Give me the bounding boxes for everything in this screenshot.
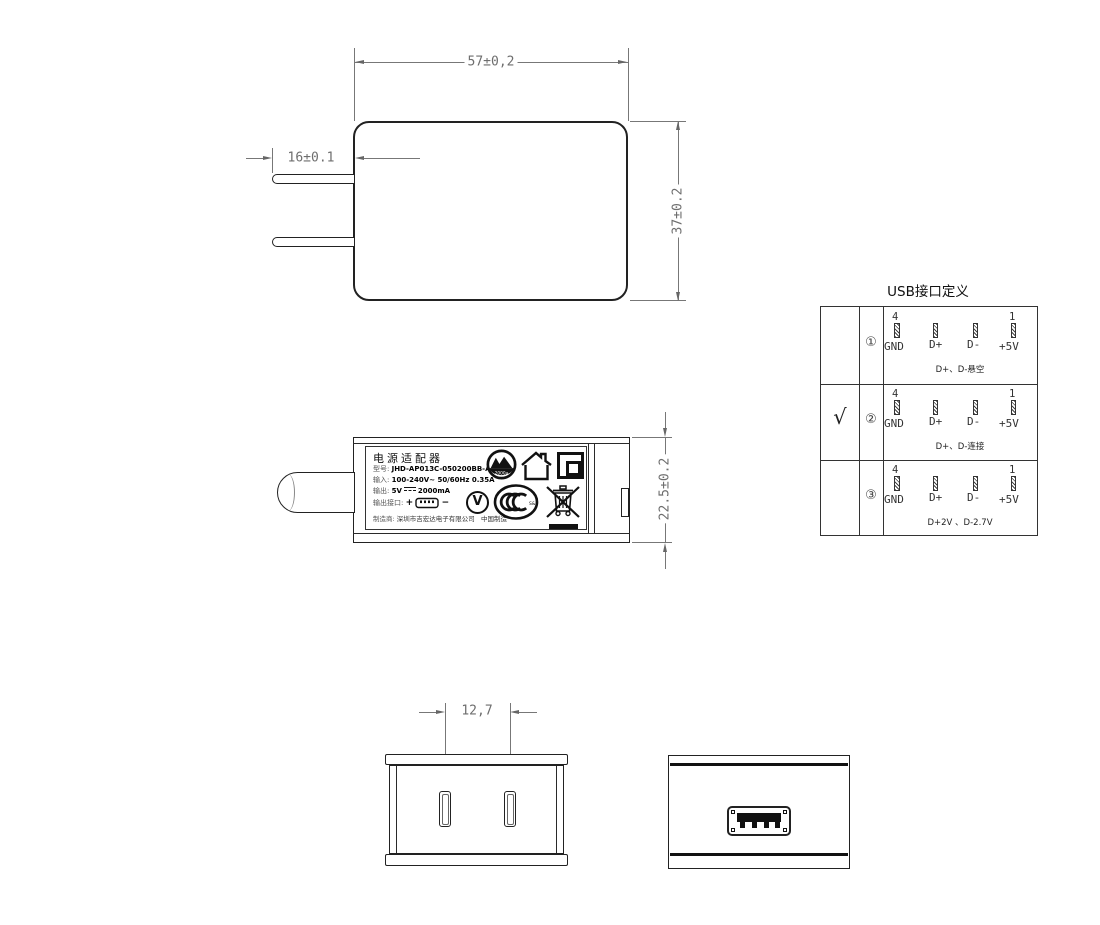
- rating-label: 电源适配器 型号: JHD-AP013C-050200BB-A 输入: 100-…: [365, 446, 587, 530]
- pin-number-1: 1: [1009, 464, 1015, 476]
- dim-height-text: 37±0.2: [671, 185, 686, 238]
- pin-contact: [894, 323, 900, 338]
- input-value: 100-240V~ 50/60Hz 0.35A: [392, 476, 495, 484]
- ccc-mark-icon: S&E: [493, 483, 540, 521]
- usb-port-side-notch: [621, 488, 629, 517]
- pin-number-4: 4: [892, 388, 898, 400]
- pin-label-dplus: D+: [929, 338, 942, 351]
- body-inner-line: [396, 766, 397, 853]
- table-row-line: [821, 460, 1037, 461]
- row-selected-mark: √: [821, 405, 859, 429]
- port-corner-tick: [783, 810, 787, 814]
- dimension-lead-line: [665, 412, 666, 429]
- efficiency-mountain-icon: 2000a: [486, 449, 517, 480]
- dimension-line: [364, 158, 420, 159]
- port-minus: −: [442, 498, 450, 508]
- arrow-right-icon: [618, 60, 627, 64]
- dimension-lead-line: [665, 552, 666, 569]
- pin-number-1: 1: [1009, 388, 1015, 400]
- pin-label-gnd: GND: [884, 493, 904, 506]
- label-output-line: 输出: 5V2000mA: [373, 486, 450, 496]
- prong-slot-right: [504, 791, 516, 827]
- body-seam-line: [588, 444, 589, 533]
- usb-tongue: [737, 813, 781, 822]
- pin-label-gnd: GND: [884, 417, 904, 430]
- weee-bar-icon: [549, 524, 578, 529]
- pin-label-gnd: GND: [884, 340, 904, 353]
- arrow-left-icon: [355, 156, 364, 160]
- pin-number-4: 4: [892, 311, 898, 323]
- pin-contact: [1011, 476, 1016, 491]
- arrow-down-icon: [663, 428, 667, 437]
- arrow-up-icon: [676, 121, 680, 130]
- arrow-right-icon: [263, 156, 272, 160]
- extension-line: [354, 48, 355, 121]
- maker-key: 制造商:: [373, 515, 395, 523]
- output-voltage: 5V: [392, 487, 402, 495]
- arrow-down-icon: [676, 292, 680, 301]
- extension-line: [632, 437, 672, 438]
- body-edge-line: [353, 533, 630, 534]
- maker-value: 深圳市吉宏达电子有限公司: [397, 515, 475, 523]
- port-plus: +: [406, 498, 414, 508]
- pin-contact: [973, 323, 978, 338]
- port-corner-tick: [731, 810, 735, 814]
- usb-contact-pin: [764, 822, 769, 828]
- indoor-use-house-icon: [520, 451, 553, 481]
- usb-contact-pin: [752, 822, 757, 828]
- dimension-lead-line: [519, 712, 537, 713]
- arrow-left-icon: [510, 710, 519, 714]
- efficiency-circle-text: 2000a: [495, 470, 509, 476]
- usb-table-title: USB接口定义: [820, 280, 1036, 300]
- efficiency-v-icon: V: [466, 491, 489, 514]
- prong-curve-line: [281, 474, 295, 511]
- ccc-small-text: S&E: [529, 501, 538, 507]
- usb-connector-icon: [415, 497, 439, 509]
- port-corner-tick: [783, 828, 787, 832]
- dim-prong-text: 16±0.1: [285, 151, 338, 166]
- arrow-right-icon: [436, 710, 445, 714]
- technical-drawing-canvas: 57±0,2 16±0.1 37±0.2 电源适配器: [0, 0, 1100, 925]
- usb-contact-pin: [740, 822, 745, 828]
- pin-contact: [1011, 323, 1016, 338]
- extension-line: [628, 48, 629, 121]
- body-groove-line-bottom: [670, 853, 848, 856]
- pin-contact: [933, 476, 938, 491]
- output-current: 2000mA: [418, 487, 450, 495]
- usb-contact-pin: [775, 822, 780, 828]
- v-mark-text: V: [472, 494, 482, 509]
- pin-label-dminus: D-: [967, 415, 980, 428]
- row-index: ②: [859, 412, 883, 427]
- label-maker-line: 制造商: 深圳市吉宏达电子有限公司 中国制造: [373, 513, 507, 523]
- class-ii-inner-square: [566, 461, 581, 476]
- model-value: JHD-AP013C-050200BB-A: [392, 465, 491, 473]
- plug-face-top-cap: [385, 754, 568, 765]
- input-key: 输入:: [373, 476, 389, 484]
- class-ii-icon: [557, 452, 584, 479]
- dc-symbol-icon: [404, 487, 416, 494]
- pin-label-dplus: D+: [929, 415, 942, 428]
- pin-label-dplus: D+: [929, 491, 942, 504]
- prong-slot-inner-line: [507, 794, 514, 825]
- dim-prong-spacing-text: 12,7: [458, 704, 495, 719]
- table-row-line: [821, 384, 1037, 385]
- plug-prong-top: [272, 174, 355, 184]
- plug-face-bottom-cap: [385, 854, 568, 866]
- row-index: ③: [859, 488, 883, 503]
- adapter-body-front: [353, 121, 628, 301]
- usb-pinout-table: ① 4 1 GND D+ D- +5V D+、D-悬空 √ ② 4 1 GND …: [820, 306, 1038, 536]
- port-key: 输出接口:: [373, 499, 403, 507]
- arrow-up-icon: [663, 543, 667, 552]
- pin-contact: [894, 476, 900, 491]
- output-key: 输出:: [373, 487, 389, 495]
- body-inner-line: [556, 766, 557, 853]
- pin-label-dminus: D-: [967, 338, 980, 351]
- row-note: D+、D-连接: [883, 440, 1037, 452]
- prong-slot-inner-line: [442, 794, 449, 825]
- pin-number-1: 1: [1009, 311, 1015, 323]
- arrow-left-icon: [355, 60, 364, 64]
- row-note: D+2V 、D-2.7V: [883, 516, 1037, 528]
- label-input-line: 输入: 100-240V~ 50/60Hz 0.35A: [373, 475, 495, 485]
- pin-contact: [894, 400, 900, 415]
- body-groove-line-top: [670, 763, 848, 766]
- pin-contact: [973, 400, 978, 415]
- pin-contact: [933, 323, 938, 338]
- port-corner-tick: [731, 828, 735, 832]
- weee-bin-icon: [545, 483, 581, 521]
- pin-label-5v: +5V: [999, 340, 1019, 353]
- row-note: D+、D-悬空: [883, 363, 1037, 375]
- pin-label-5v: +5V: [999, 417, 1019, 430]
- dimension-lead-line: [419, 712, 437, 713]
- pin-number-4: 4: [892, 464, 898, 476]
- body-seam-line: [594, 444, 595, 533]
- pin-contact: [1011, 400, 1016, 415]
- extension-line: [272, 148, 273, 173]
- model-key: 型号:: [373, 465, 389, 473]
- plug-prong-bottom: [272, 237, 355, 247]
- label-model-line: 型号: JHD-AP013C-050200BB-A: [373, 464, 490, 474]
- pin-label-dminus: D-: [967, 491, 980, 504]
- pin-contact: [973, 476, 978, 491]
- dim-depth-text: 22.5±0.2: [658, 455, 673, 524]
- prong-slot-left: [439, 791, 451, 827]
- pin-contact: [933, 400, 938, 415]
- row-index: ①: [859, 335, 883, 350]
- dim-width-text: 57±0,2: [465, 55, 518, 70]
- plug-face-body: [389, 765, 564, 854]
- pin-label-5v: +5V: [999, 493, 1019, 506]
- label-port-line: 输出接口: + −: [373, 497, 449, 509]
